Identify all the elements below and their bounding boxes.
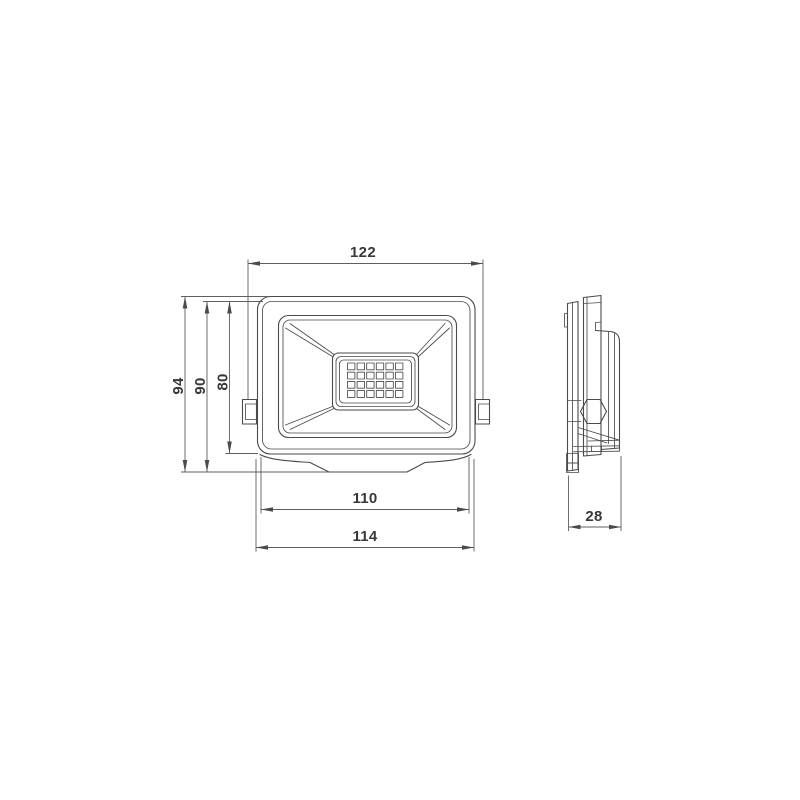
reflector-lines (286, 324, 450, 430)
front-view (243, 297, 490, 473)
dim-label-90: 90 (192, 377, 209, 394)
led-chip (348, 391, 355, 398)
side-view (565, 296, 620, 473)
dim-label-114: 114 (352, 528, 377, 545)
side-bracket (567, 428, 620, 473)
led-chip (386, 372, 393, 379)
mount-tab-right (476, 400, 490, 425)
led-chip (357, 363, 364, 370)
led-chip (348, 381, 355, 388)
dim-height-face: 80 (215, 302, 259, 454)
led-chip (367, 381, 374, 388)
led-chip (357, 391, 364, 398)
dim-width-bottom-inner: 110 (261, 457, 469, 514)
dim-depth: 28 (569, 456, 622, 531)
led-chip (386, 363, 393, 370)
led-chip (376, 391, 383, 398)
dim-label-94: 94 (170, 377, 187, 395)
led-chip (348, 372, 355, 379)
led-chip (357, 372, 364, 379)
led-chip (396, 391, 403, 398)
mount-bolt-hex (581, 400, 607, 424)
led-chip (386, 391, 393, 398)
bracket-bottom (260, 455, 471, 473)
led-chip (367, 363, 374, 370)
led-grid (348, 363, 403, 397)
dim-label-80: 80 (215, 373, 232, 390)
technical-drawing: 122 94 90 80 110 114 28 (0, 0, 800, 800)
drawing-canvas: 122 94 90 80 110 114 28 (0, 0, 800, 800)
led-chip (396, 381, 403, 388)
led-chip (367, 391, 374, 398)
led-chip (376, 363, 383, 370)
led-chip (367, 372, 374, 379)
led-chip (348, 363, 355, 370)
side-front-plate (565, 302, 582, 472)
dim-label-122: 122 (350, 244, 376, 261)
side-body (584, 296, 620, 457)
led-chip (357, 381, 364, 388)
led-chip (376, 372, 383, 379)
led-chip (386, 381, 393, 388)
dim-label-28: 28 (585, 508, 602, 525)
led-chip (396, 363, 403, 370)
led-chip (376, 381, 383, 388)
led-panel-frame (333, 353, 419, 410)
dim-label-110: 110 (352, 490, 377, 507)
led-chip (396, 372, 403, 379)
mount-tab-left (243, 400, 257, 425)
